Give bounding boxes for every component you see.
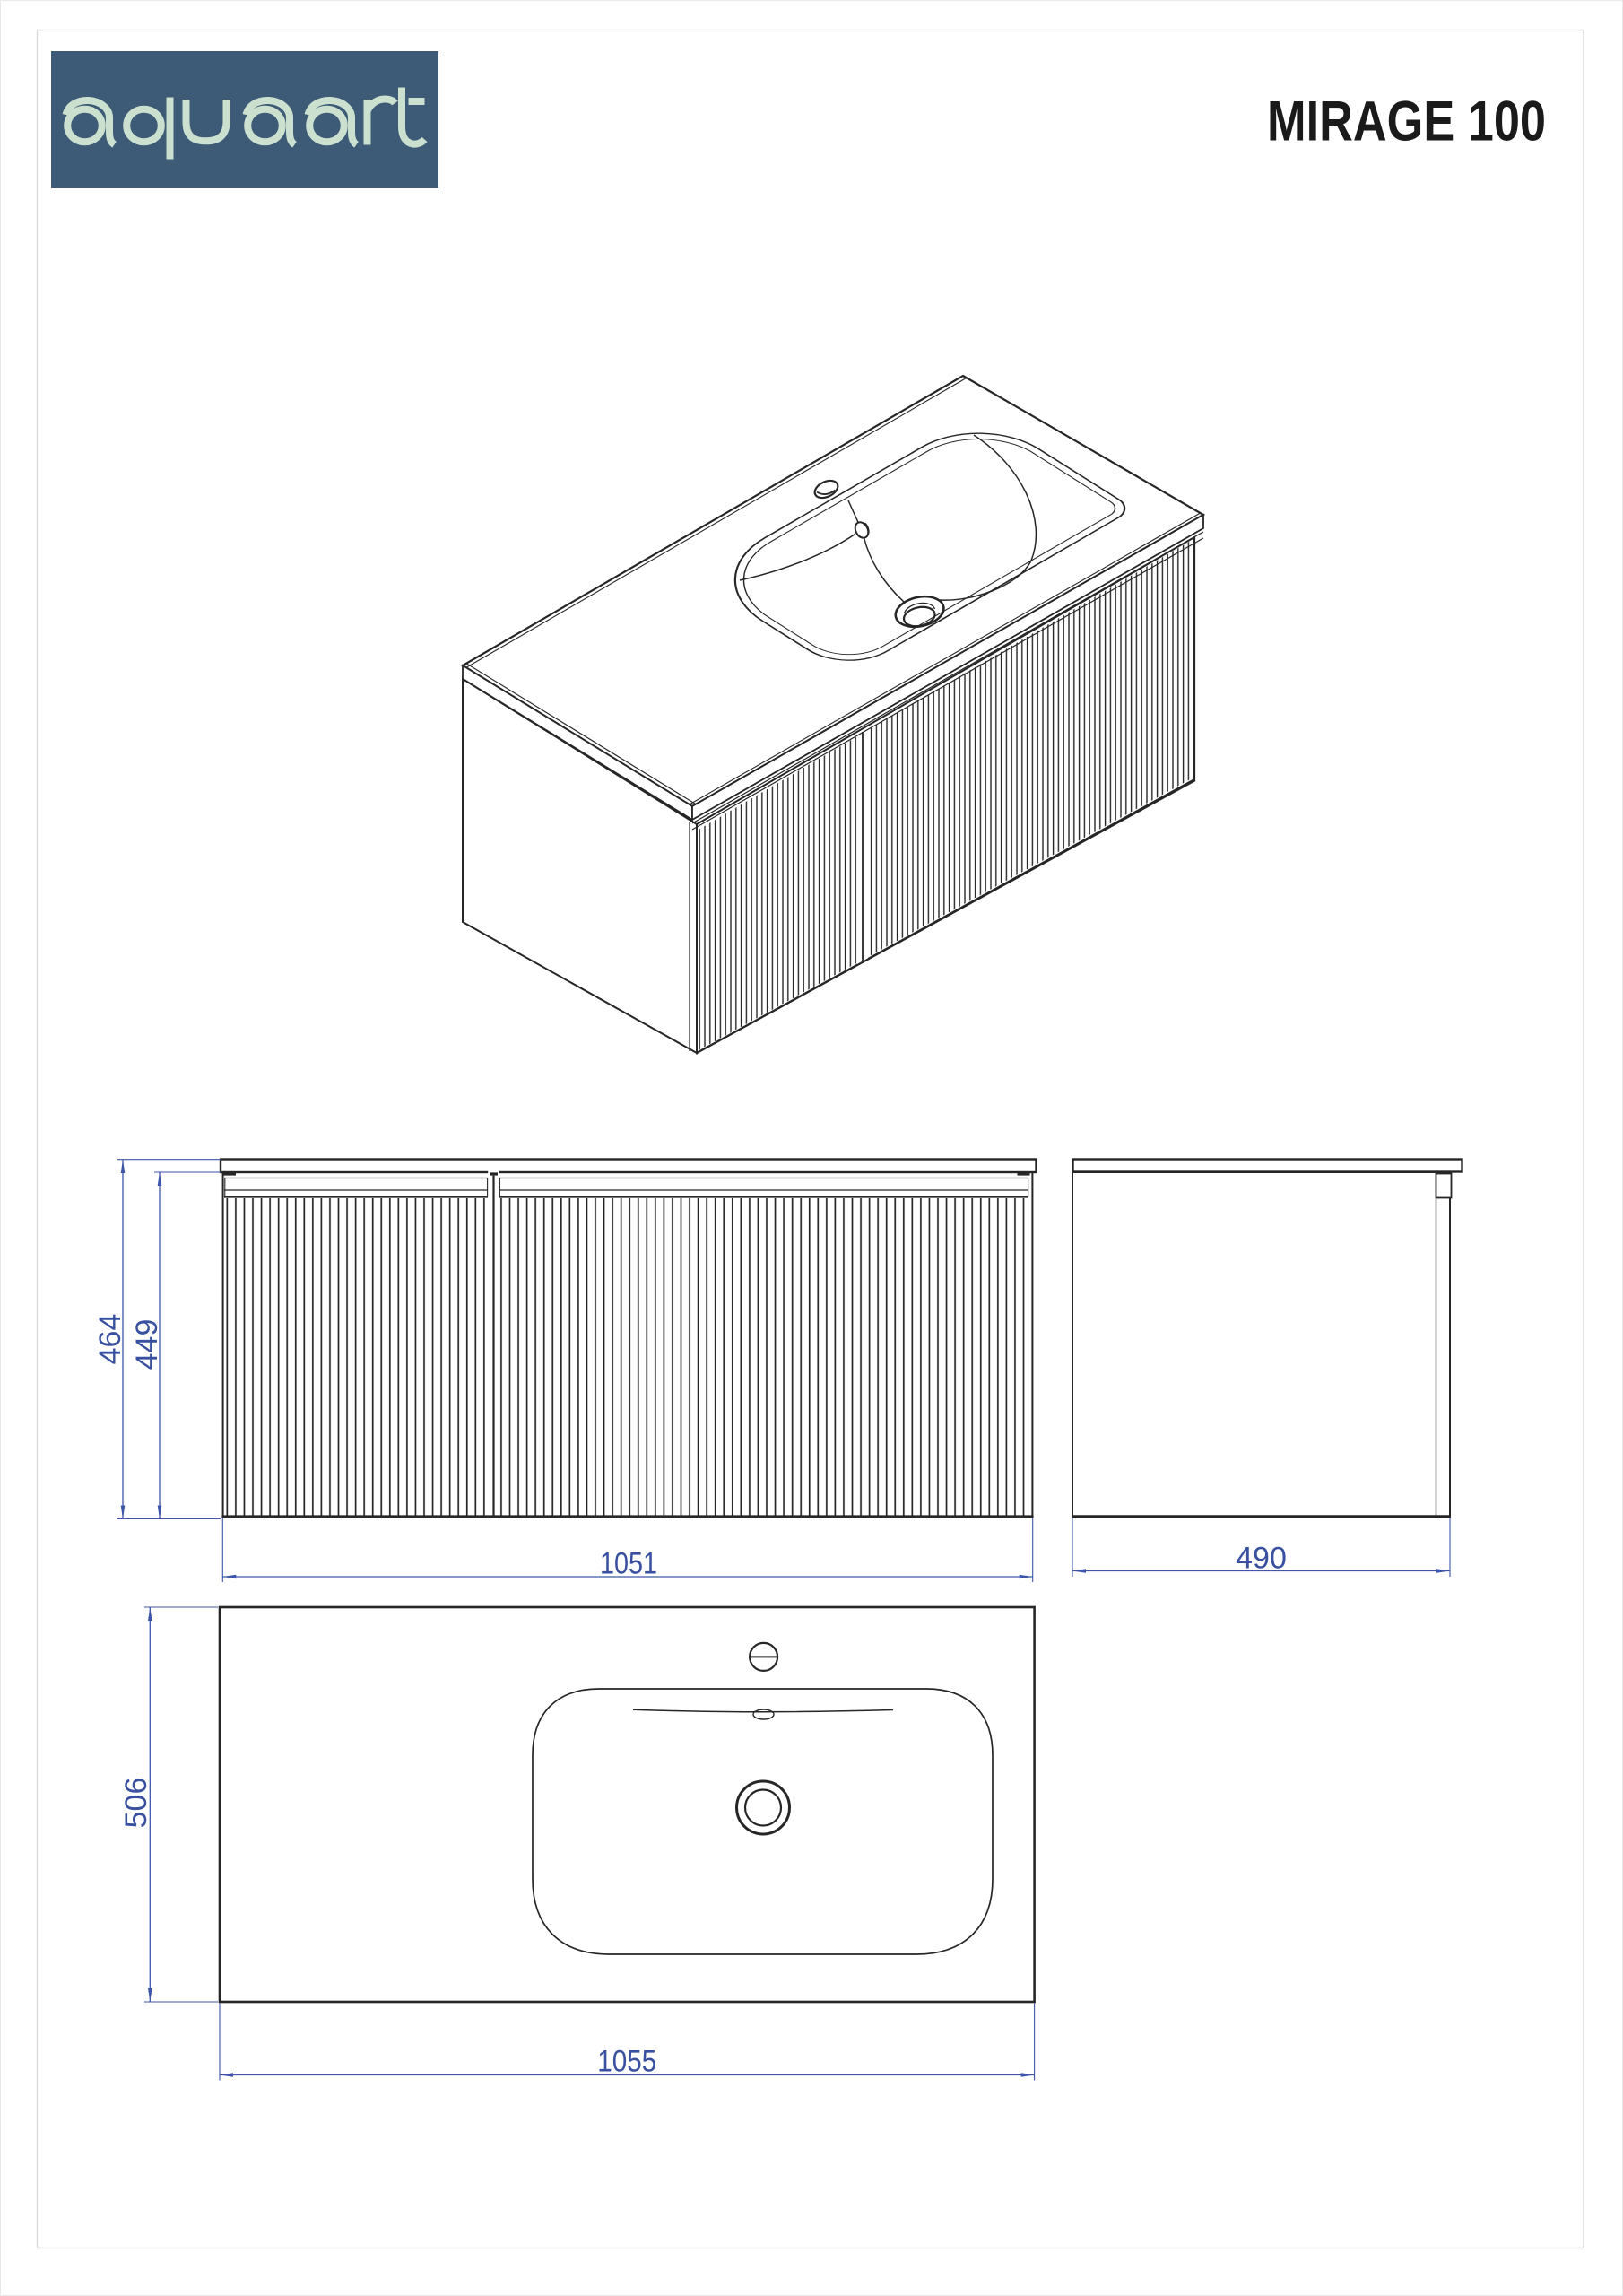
svg-text:MIRAGE 100: MIRAGE 100: [1267, 91, 1546, 153]
svg-text:449: 449: [130, 1319, 164, 1370]
svg-text:490: 490: [1236, 1541, 1287, 1575]
svg-text:1055: 1055: [597, 2045, 656, 2079]
svg-text:1051: 1051: [600, 1547, 657, 1581]
svg-text:464: 464: [93, 1314, 127, 1365]
svg-text:506: 506: [119, 1778, 153, 1829]
